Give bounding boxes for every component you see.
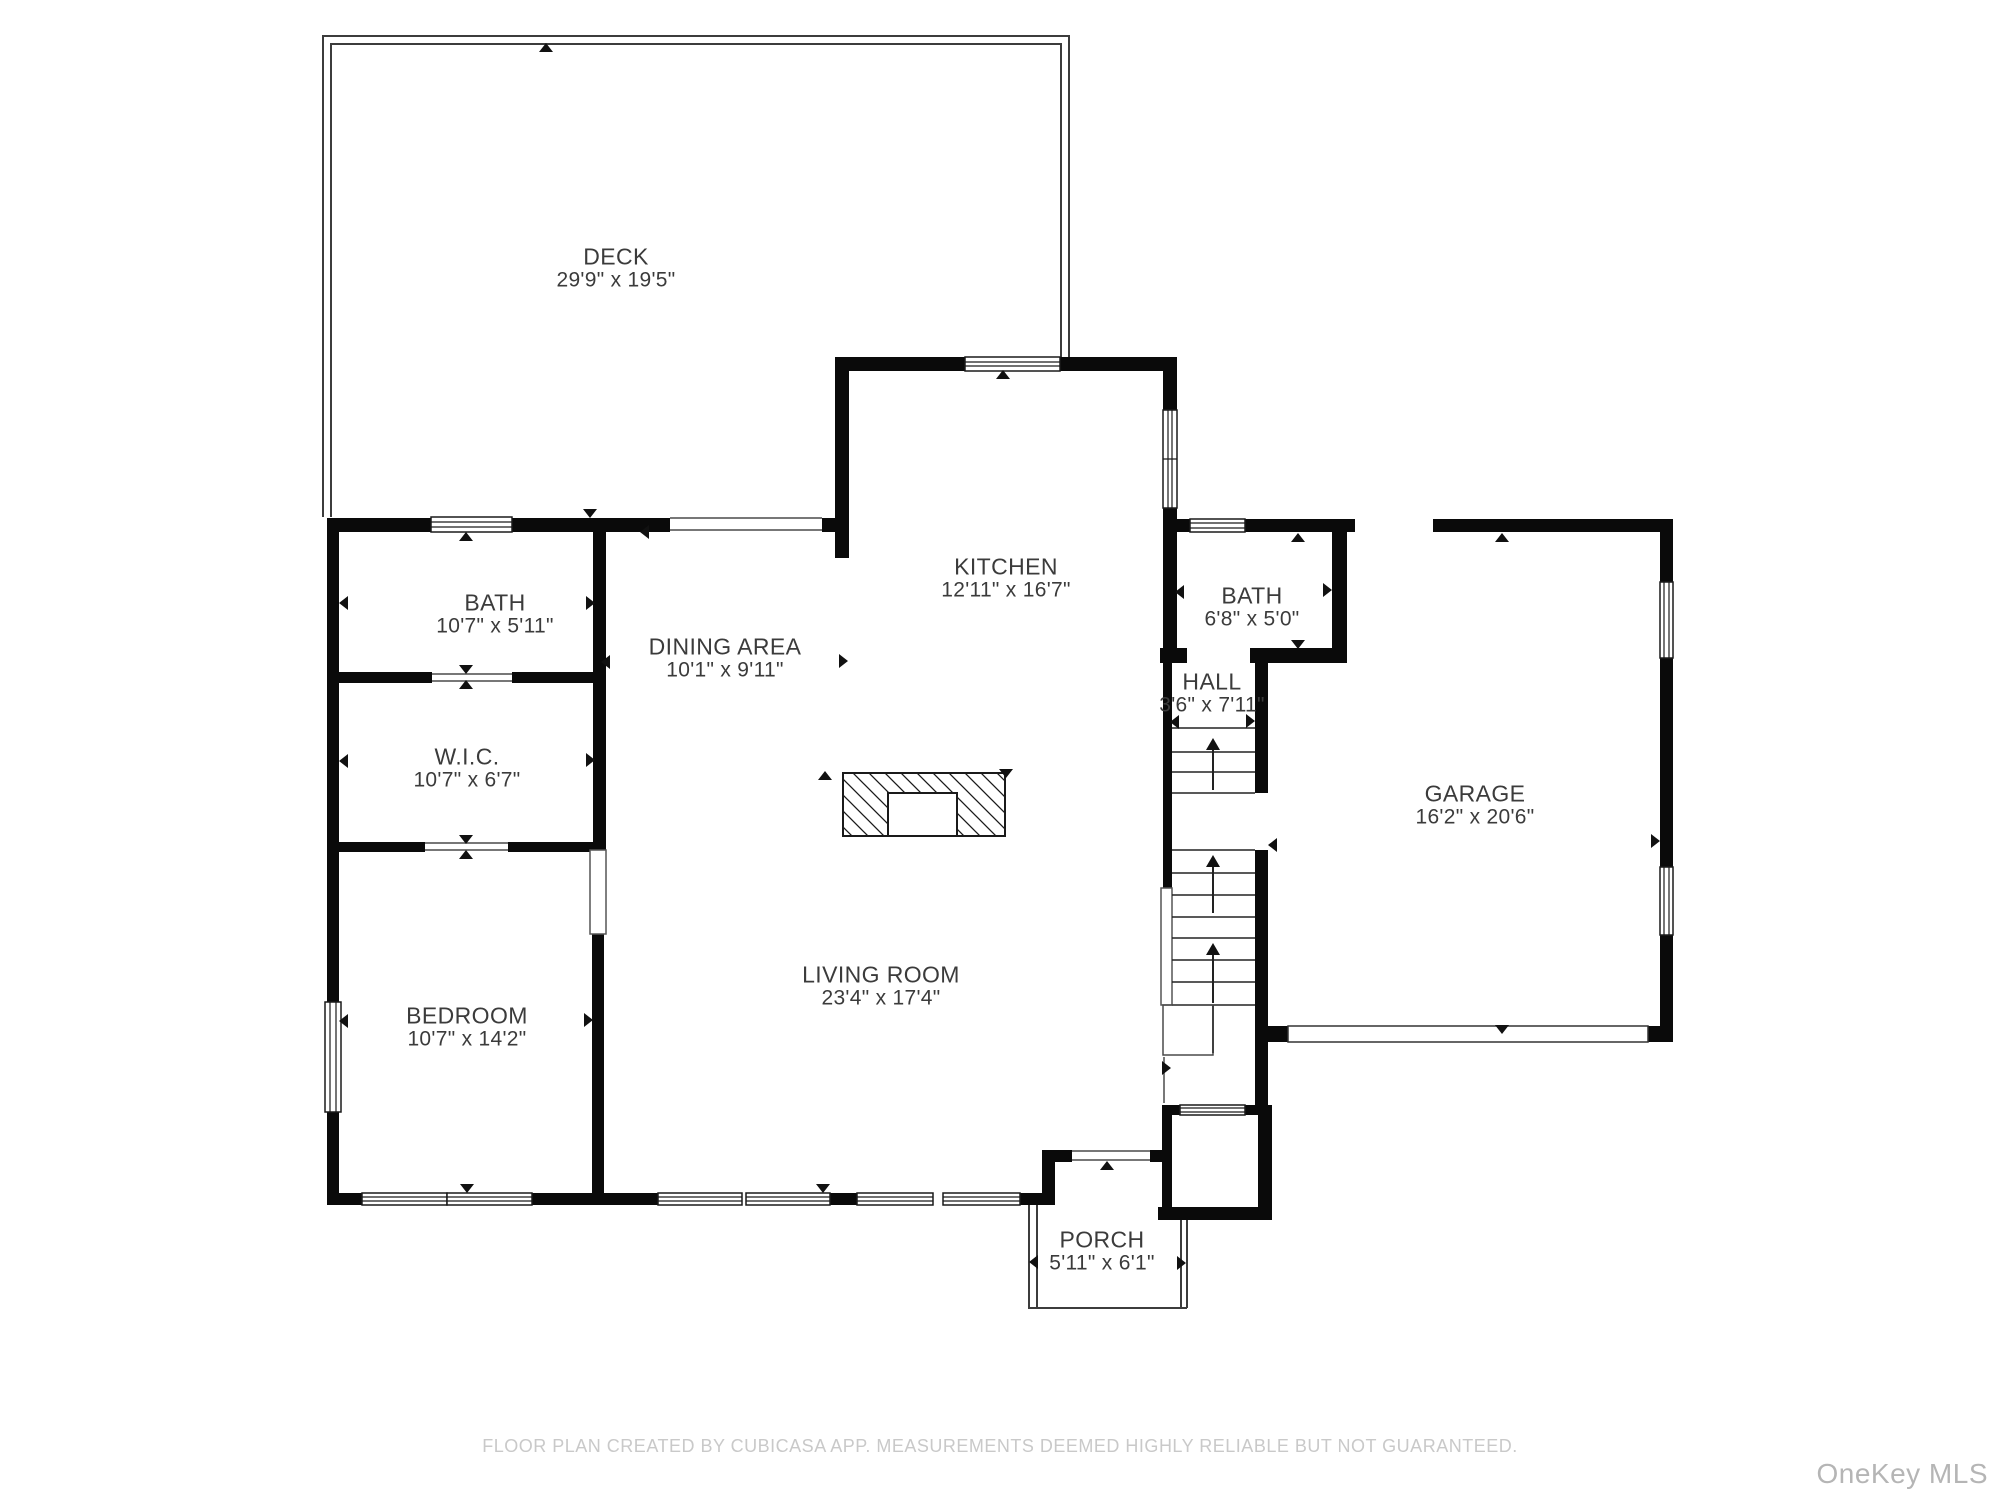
bedroom-door <box>590 850 606 934</box>
stairs <box>1163 728 1255 1055</box>
room-name: KITCHEN <box>941 555 1071 579</box>
room-name: PORCH <box>1049 1228 1155 1252</box>
room-dims: 16'2" x 20'6" <box>1415 806 1534 829</box>
room-label-bath-right: BATH 6'8" x 5'0" <box>1204 584 1299 631</box>
room-dims: 10'7" x 5'11" <box>436 615 554 638</box>
room-label-bedroom: BEDROOM 10'7" x 14'2" <box>406 1004 528 1051</box>
room-dims: 10'1" x 9'11" <box>649 659 802 682</box>
room-label-living-room: LIVING ROOM 23'4" x 17'4" <box>802 963 960 1010</box>
room-dims: 23'4" x 17'4" <box>802 987 960 1010</box>
room-label-dining-area: DINING AREA 10'1" x 9'11" <box>649 635 802 682</box>
room-name: BATH <box>1204 584 1299 608</box>
deck-outline <box>323 36 1069 517</box>
room-dims: 10'7" x 6'7" <box>413 769 520 792</box>
room-name: DECK <box>556 245 675 269</box>
room-label-deck: DECK 29'9" x 19'5" <box>556 245 675 292</box>
room-dims: 10'7" x 14'2" <box>406 1028 528 1051</box>
kitchen-island <box>843 773 1005 836</box>
stair-door <box>1161 888 1172 1005</box>
room-name: W.I.C. <box>413 745 520 769</box>
room-label-kitchen: KITCHEN 12'11" x 16'7" <box>941 555 1071 602</box>
room-name: BEDROOM <box>406 1004 528 1028</box>
floor-plan-page: { "colors": { "wall": "#0a0a0a", "thin_l… <box>0 0 2000 1500</box>
room-label-wic: W.I.C. 10'7" x 6'7" <box>413 745 520 792</box>
room-name: HALL <box>1159 670 1265 694</box>
room-label-hall: HALL 3'6" x 7'11" <box>1159 670 1265 717</box>
disclaimer-text: FLOOR PLAN CREATED BY CUBICASA APP. MEAS… <box>0 1436 2000 1457</box>
dimension-markers <box>339 43 1660 1270</box>
room-label-porch: PORCH 5'11" x 6'1" <box>1049 1228 1155 1275</box>
room-dims: 3'6" x 7'11" <box>1159 694 1265 717</box>
garage-door <box>1288 1026 1648 1042</box>
room-dims: 29'9" x 19'5" <box>556 269 675 292</box>
room-dims: 12'11" x 16'7" <box>941 579 1071 602</box>
room-name: LIVING ROOM <box>802 963 960 987</box>
room-name: BATH <box>436 591 554 615</box>
room-dims: 6'8" x 5'0" <box>1204 608 1299 631</box>
room-label-bath-left: BATH 10'7" x 5'11" <box>436 591 554 638</box>
room-name: GARAGE <box>1415 782 1534 806</box>
room-label-garage: GARAGE 16'2" x 20'6" <box>1415 782 1534 829</box>
watermark: OneKey MLS <box>1816 1458 1988 1490</box>
room-dims: 5'11" x 6'1" <box>1049 1252 1155 1275</box>
room-name: DINING AREA <box>649 635 802 659</box>
floor-plan-drawing <box>0 0 2000 1500</box>
